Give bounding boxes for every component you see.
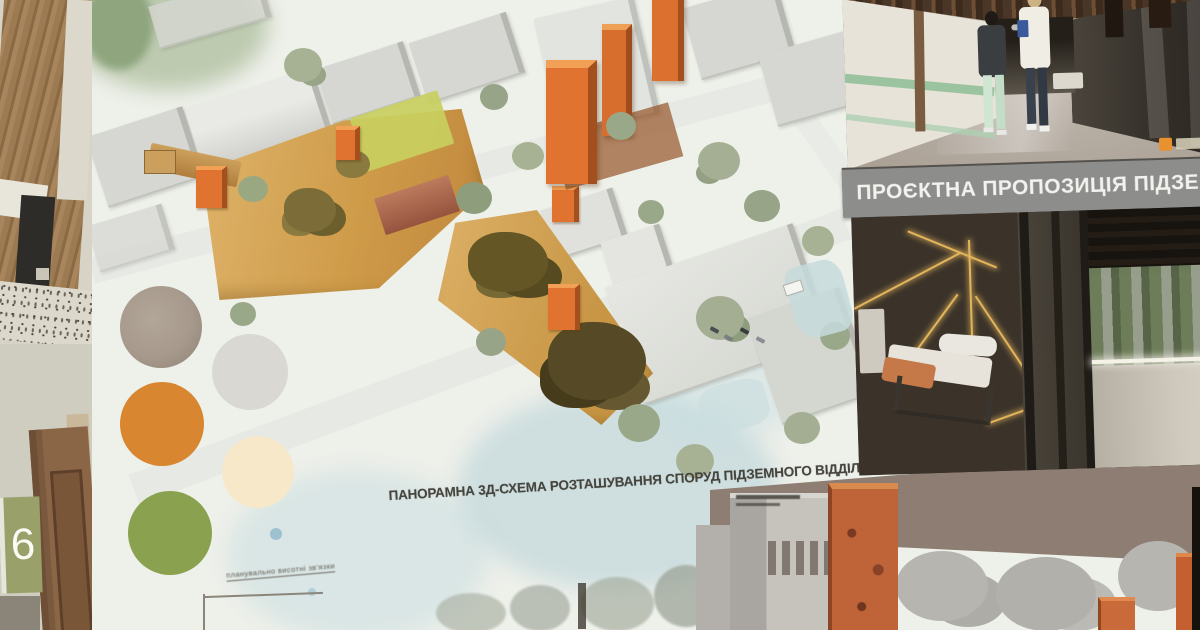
person-trousers-dark [1026,68,1037,124]
legend-circle-light-gray [212,334,288,410]
person-shoe [1039,125,1049,131]
tree-trunk-dark [578,583,586,629]
corridor-photo [842,0,1200,170]
orange-stair-tower [196,166,227,208]
tree-dark-cluster [468,232,548,292]
tree-sage [638,200,664,224]
tree-sage [696,296,744,340]
tree-dark-cluster [548,322,646,400]
section-title: ПРОЄКТНА ПРОПОЗИЦІЯ ПІДЗЕМНОГО [856,168,1200,205]
tree-sage [476,328,506,356]
tree-sage [238,176,268,202]
room-number-sign: 6 [0,496,43,593]
left-wall-post [914,1,926,131]
device-screen [36,268,49,280]
building-block [148,0,272,49]
building-block [409,12,526,104]
tree-sage [512,142,544,170]
device-dark-body [15,195,56,293]
orange-stair-tower [548,284,580,330]
person-trousers-mint [995,75,1006,129]
terrazzo-counter [0,281,92,349]
orange-tower-tall [652,0,684,81]
orange-tower-tall [546,60,597,184]
render-building-window-band [768,541,834,575]
gurney-white [1053,72,1083,89]
tree-sage [784,412,820,444]
person-coat [1019,6,1051,69]
callout-line-vertical [203,594,205,630]
ward-corridor-floor [1092,356,1200,468]
tree-sage [606,112,636,140]
photo-dark-edge [1192,487,1200,630]
room-number: 6 [10,520,36,570]
person-shoe [983,127,993,132]
person-jacket [977,25,1007,78]
tree-sage [698,142,740,180]
ward-wall-green-panels [1089,264,1200,366]
legend-circle-gray-taupe [120,286,202,368]
photo-of-presentation-board: ПАНОРАМНА 3Д-СХЕМА РОЗТАШУВАННЯ СПОРУД П… [0,0,1200,630]
brand-badge-icon [1159,138,1172,151]
tree-silhouette [580,577,654,630]
tree-sage [618,404,660,442]
orange-stair-tower [552,186,579,222]
legend-circle-green [128,491,212,575]
tree-silhouette [510,585,570,630]
render-annotation-text-lines [736,495,800,499]
watercolor-blue-dot [270,528,282,540]
floor-corner-gray [0,596,40,630]
render-orange-cube [1098,597,1135,630]
tree-sage [456,182,492,214]
orange-stair-tower [336,126,360,160]
ceiling-dark-fin [1148,0,1172,28]
tree-sage [802,226,834,256]
person-shoe [997,130,1007,135]
blue-folder [1017,20,1029,37]
corridor-entry-block [144,150,176,174]
render-tree-gray [896,551,988,621]
room-environment: 6 [0,0,92,630]
legend-circle-orange [120,382,204,466]
person-trousers-dark [1038,67,1049,125]
ceiling-dark-fin [1104,0,1124,38]
brand-badge-label [1176,137,1200,149]
interior-photo [851,206,1200,476]
hospital-bed [875,329,1001,430]
person-shoe [1026,124,1036,130]
tree-olive [284,188,336,232]
right-panel: ПРОЄКТНА ПРОПОЗИЦІЯ ПІДЗЕМНОГО [836,0,1200,508]
legend-circle-cream [222,436,294,508]
person-dark-jacket [973,11,1014,158]
person-trousers-mint [983,75,994,127]
tree-sage [230,302,256,326]
tree-sage [284,48,322,82]
person-white-coat [1014,0,1059,158]
render-tree-gray [996,557,1096,630]
render-annotation-text-lines [736,503,780,506]
tree-silhouette [436,593,506,630]
tree-sage [744,190,780,222]
tree-sage [480,84,508,110]
